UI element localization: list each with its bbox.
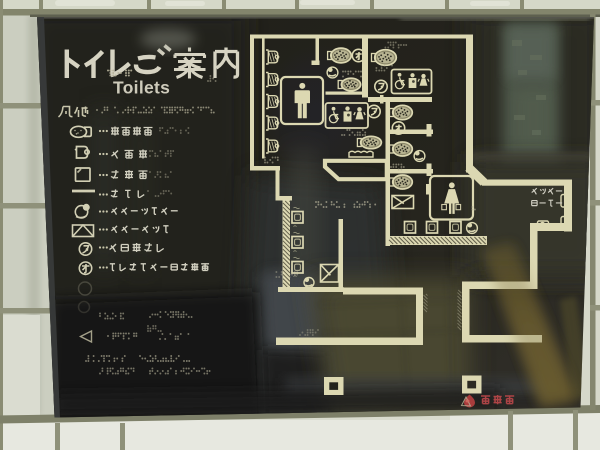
svg-text:Toilets: Toilets (113, 78, 170, 98)
